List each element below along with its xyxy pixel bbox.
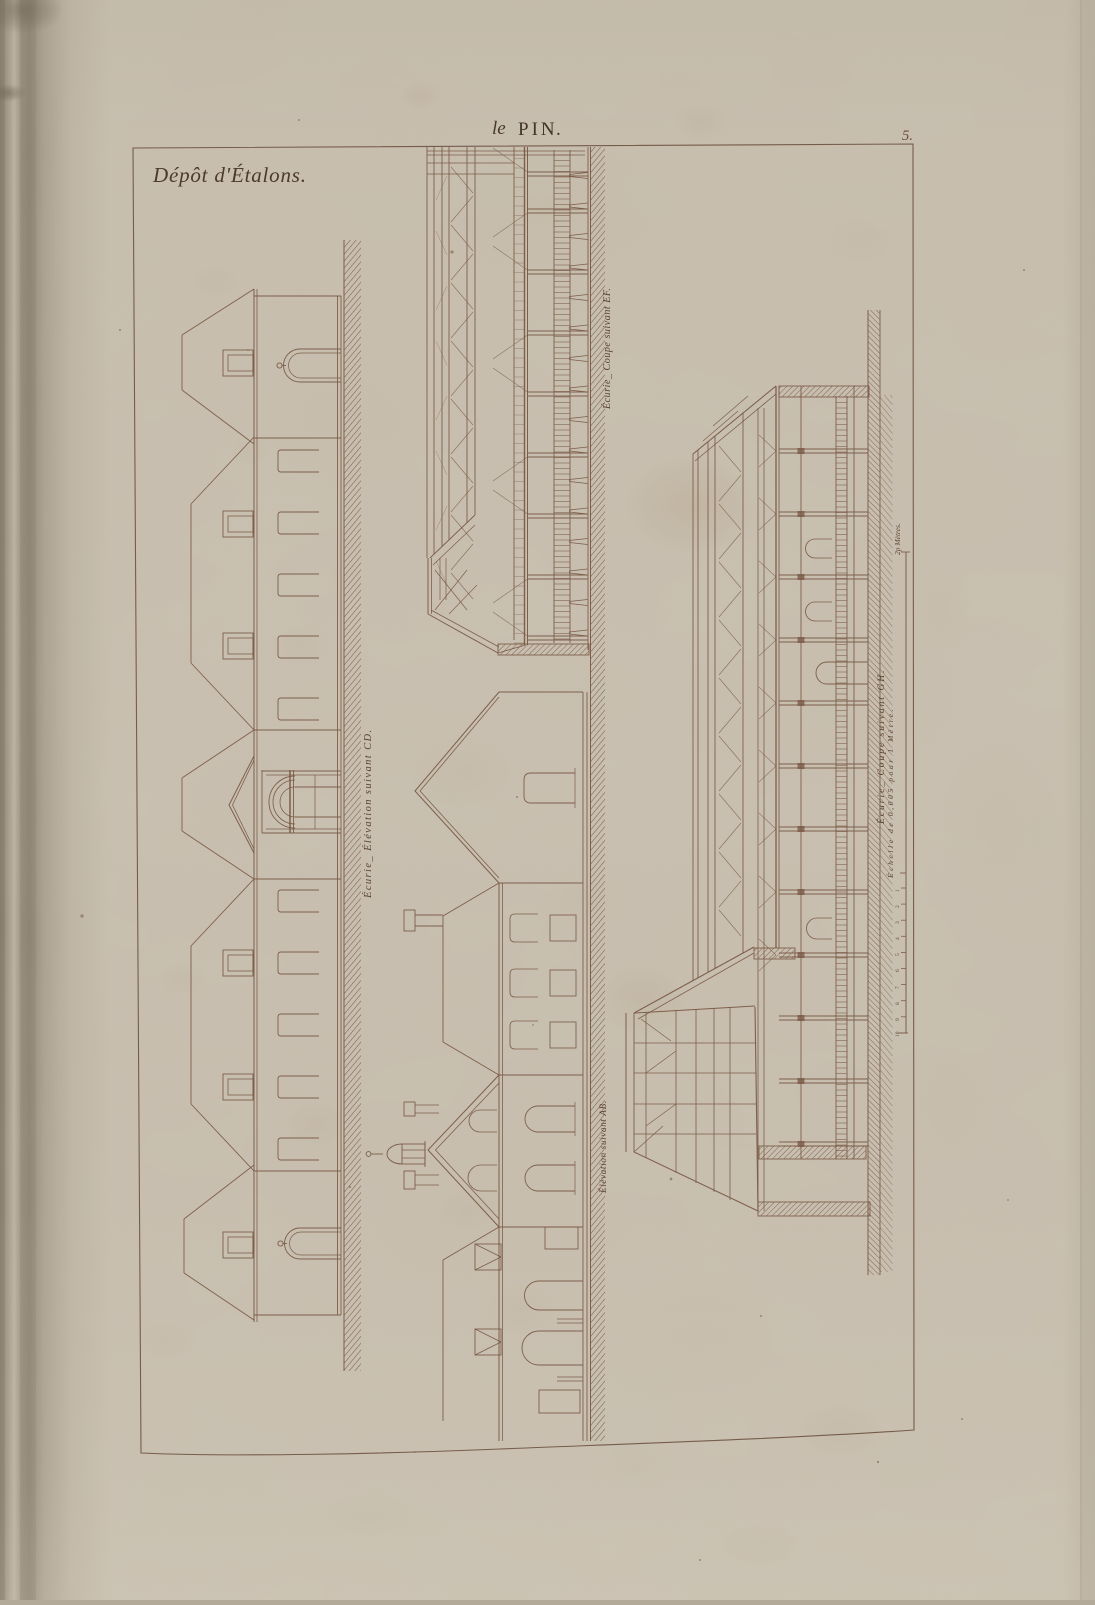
svg-text:le: le [492, 118, 506, 139]
svg-text:Écurie_ Élévation suivant CD.: Écurie_ Élévation suivant CD. [362, 729, 374, 900]
svg-text:PIN: PIN [518, 119, 558, 140]
svg-text:3: 3 [895, 921, 901, 924]
svg-text:Écurie_ Coupe suivant EF.: Écurie_ Coupe suivant EF. [601, 288, 613, 410]
svg-text:6: 6 [895, 969, 901, 972]
svg-text:Dépôt d'Étalons.: Dépôt d'Étalons. [152, 163, 307, 187]
svg-text:2p Mètres.: 2p Mètres. [893, 523, 902, 555]
svg-text:5: 5 [895, 953, 901, 956]
svg-text:10: 10 [895, 1031, 901, 1037]
svg-text:8: 8 [895, 1002, 901, 1005]
svg-text:Échelle de 0,005 pour 1 Mètre.: Échelle de 0,005 pour 1 Mètre. [885, 707, 895, 879]
svg-text:5.: 5. [902, 128, 913, 144]
svg-text:9: 9 [895, 1018, 901, 1021]
svg-text:1: 1 [895, 889, 901, 892]
svg-text:2: 2 [895, 905, 901, 908]
svg-text:7: 7 [895, 986, 901, 989]
svg-text:4: 4 [895, 937, 901, 940]
svg-text:Élévation suivant AB.: Élévation suivant AB. [598, 1100, 608, 1194]
svg-text:.: . [556, 119, 561, 140]
